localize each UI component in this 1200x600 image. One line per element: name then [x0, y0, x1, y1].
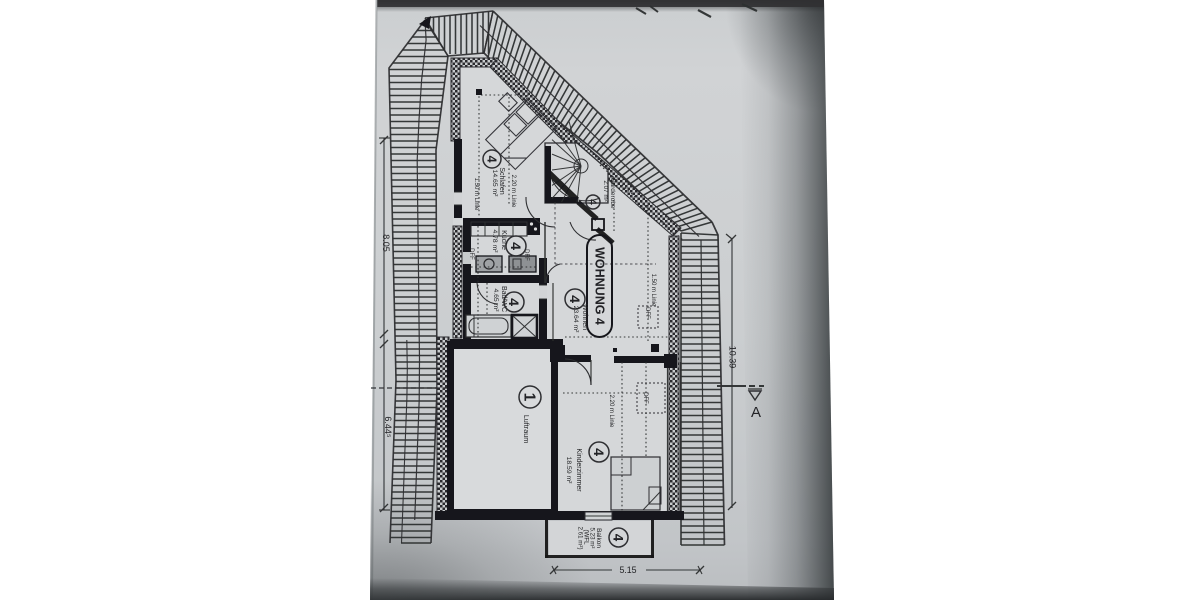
svg-text:5.15: 5.15: [619, 565, 636, 575]
svg-text:Kinderzimmer: Kinderzimmer: [575, 448, 582, 492]
svg-text:4: 4: [507, 242, 523, 250]
svg-text:10.39: 10.39: [728, 346, 738, 369]
svg-text:1: 1: [520, 393, 537, 402]
svg-text:Luftraum: Luftraum: [522, 415, 531, 443]
svg-text:4: 4: [566, 295, 582, 303]
svg-text:2.20 m Linie: 2.20 m Linie: [608, 395, 614, 428]
svg-text:Schlafen: Schlafen: [498, 167, 505, 194]
svg-text:14.65 m²: 14.65 m²: [491, 170, 498, 198]
svg-text:Küche: Küche: [500, 230, 507, 250]
svg-text:4: 4: [611, 534, 626, 542]
svg-text:1.50 m Linie: 1.50 m Linie: [650, 274, 656, 307]
svg-text:DFF: DFF: [644, 307, 650, 319]
svg-text:WOHNUNG 4: WOHNUNG 4: [593, 247, 607, 325]
svg-text:1.50 m Linie: 1.50 m Linie: [473, 178, 479, 211]
svg-text:Bad/WC: Bad/WC: [500, 286, 507, 312]
svg-text:6.44⁵: 6.44⁵: [383, 416, 393, 438]
svg-text:DFF: DFF: [468, 248, 474, 260]
svg-text:23.64 m²: 23.64 m²: [572, 306, 579, 334]
svg-text:18.59 m²: 18.59 m²: [565, 457, 572, 485]
svg-text:4: 4: [586, 199, 597, 205]
svg-text:4: 4: [484, 155, 499, 163]
svg-text:A: A: [751, 404, 761, 421]
svg-text:4.78 m²: 4.78 m²: [491, 229, 498, 253]
svg-text:2.20 m Linie: 2.20 m Linie: [510, 175, 516, 208]
svg-text:DFF: DFF: [642, 392, 648, 404]
svg-text:2.07 m²: 2.07 m²: [602, 180, 609, 201]
svg-text:Wohnen: Wohnen: [581, 304, 588, 330]
svg-text:8.05: 8.05: [381, 234, 391, 252]
svg-text:4: 4: [590, 448, 606, 456]
svg-text:DFF: DFF: [523, 249, 529, 261]
svg-text:Garderobe: Garderobe: [609, 177, 616, 208]
svg-text:2.61 m²): 2.61 m²): [577, 526, 584, 549]
svg-text:4.65 m²: 4.65 m²: [492, 288, 499, 312]
